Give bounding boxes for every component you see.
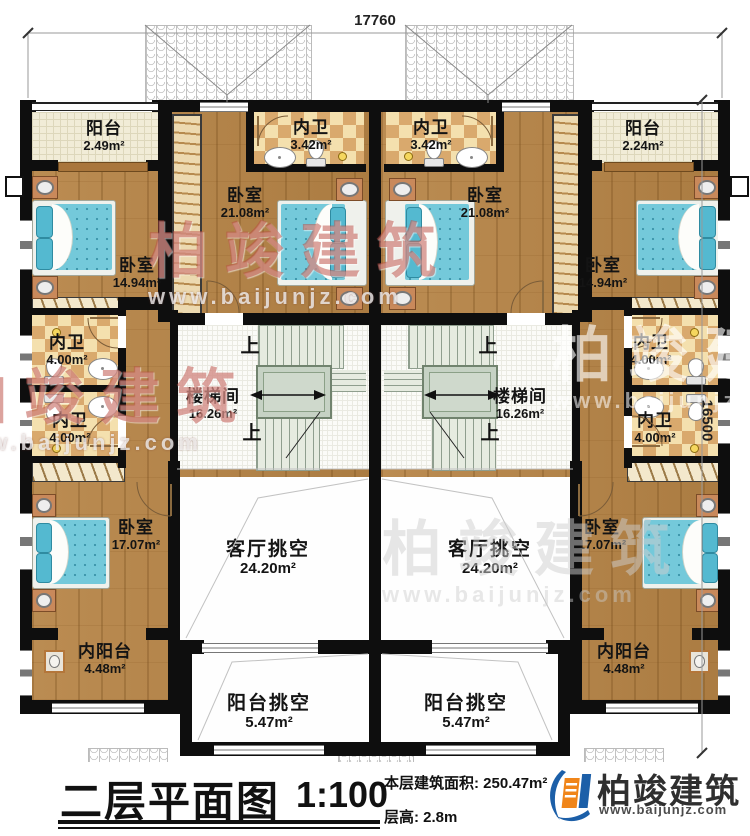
wardrobe-left-2 [32,461,125,482]
nightstand [336,287,363,310]
wall [578,297,632,310]
balcony-railing [592,102,718,111]
nightstand [694,176,720,199]
title-block: 二层平面图 1:100 本层建筑面积: 250.47m² 层高: 2.8m 柏竣… [0,762,750,836]
bed-pillow [702,553,718,583]
wall [630,308,718,315]
toilet-bowl [688,358,704,377]
roof-hatch-left [145,25,312,105]
closet-left [172,114,202,316]
window [432,643,548,653]
sink [88,358,118,380]
sink [456,147,488,168]
bed-pillow [36,206,53,238]
wall [168,461,180,714]
door-stopper [52,444,61,453]
door-stopper [404,152,413,161]
window [718,513,730,570]
dimension-right: 16500 [698,400,715,442]
wall [692,160,718,171]
wall [692,628,718,640]
stair-core [422,365,498,419]
logo-brand-url: www.baijunjz.com [599,802,727,817]
window [20,650,32,696]
wall [496,112,504,172]
balcony-door [604,162,694,172]
window [502,102,550,112]
window [20,335,32,379]
stairs-up-label: 上 [478,331,497,358]
room-label-bedroom-21-left: 卧室21.08m² [221,187,269,220]
wall [118,297,172,310]
washing-machine [44,650,65,673]
room-label-bedroom-14-right: 卧室14.94m² [579,257,627,290]
door-opening [205,313,243,325]
window [718,335,730,379]
nightstand [32,589,56,612]
door-opening [118,316,126,348]
room-label-balcony-void-right: 阳台挑空5.47m² [424,694,508,731]
room-label-balcony-void-left: 阳台挑空5.47m² [227,694,311,731]
room-label-balcony-right: 阳台2.24m² [622,120,663,153]
wall [630,456,718,463]
wall [32,160,58,171]
bed-pillow [406,243,422,278]
title-underline [58,820,380,824]
wall [158,100,370,112]
wall [384,164,504,172]
toilet-tank [44,376,64,385]
bed-pillow [699,238,716,270]
floor-area-row: 本层建筑面积: 250.47m² [384,772,547,793]
wall [578,112,592,322]
wall [630,385,718,392]
window [426,745,536,755]
floor-plan-canvas: 17760 16500 阳台2.49m² 内卫3.42m² 内卫3.42m² 阳… [0,0,750,770]
door-opening [507,313,545,325]
wardrobe-right-2 [627,461,720,482]
wall [180,640,192,756]
wall [580,628,604,640]
window [52,703,144,713]
bed-pillow [330,243,346,278]
stairs-up-label: 上 [480,418,499,445]
stair-landing [384,370,422,392]
room-label-bath2-left: 内卫4.00m² [49,412,90,445]
room-label-bath-topright: 内卫3.42m² [410,119,451,152]
nightstand [32,494,56,517]
room-label-bath-topleft: 内卫3.42m² [290,119,331,152]
door-stopper [338,152,347,161]
room-label-inner-balcony-left: 内阳台4.48m² [78,643,132,676]
wall [32,628,58,640]
wall [32,456,120,463]
room-label-living-void-right: 客厅挑空24.20m² [448,540,532,577]
window [200,102,248,112]
room-label-bedroom-14-left: 卧室14.94m² [113,257,161,290]
door-stopper [690,444,699,453]
bed-pillow [699,206,716,238]
door-stopper [690,328,699,337]
nightstand [696,494,720,517]
wall [170,310,178,480]
floor-plan-page: 17760 16500 阳台2.49m² 内卫3.42m² 内卫3.42m² 阳… [0,0,750,836]
nightstand [32,176,58,199]
toilet-tank [424,158,444,167]
bed-pillow [406,207,422,242]
toilet-tank [686,376,706,385]
stair-core [256,365,332,419]
washing-machine [689,650,710,673]
stair-flight-lower [256,415,320,471]
door-opening [624,416,632,448]
nightstand [389,178,416,201]
stairs-up-label: 上 [240,331,259,358]
balcony-railing [32,102,158,111]
dimension-top: 17760 [354,12,396,29]
wall [318,640,369,654]
window [718,220,730,270]
title-underline [58,827,380,829]
exterior-flue-box [5,176,24,197]
wall [570,461,582,714]
window [202,643,318,653]
window [606,703,698,713]
drawing-scale: 1:100 [296,774,388,816]
bed-pillow [330,207,346,242]
room-label-bedroom-17-left: 卧室17.07m² [112,519,160,552]
wall [381,640,432,654]
room-label-bedroom-21-right: 卧室21.08m² [461,187,509,220]
room-label-stairwell-right: 楼梯间16.26m² [493,388,547,421]
room-label-stairwell-left: 楼梯间16.26m² [186,388,240,421]
balcony-door [58,162,148,172]
window [20,513,32,570]
room-label-balcony-left: 阳台2.49m² [83,120,124,153]
stair-flight-upper [258,325,344,369]
wall [32,385,120,392]
nightstand [32,276,58,299]
wall [146,628,170,640]
logo-icon [548,766,594,824]
window [20,402,32,444]
stair-landing [328,370,366,392]
stairs-up-label: 上 [242,418,261,445]
room-label-bath1-right: 内卫4.00m² [630,334,671,367]
wall [572,310,580,480]
nightstand [694,276,720,299]
wall [246,112,254,172]
bed-pillow [36,553,52,583]
roof-hatch-right [405,25,574,105]
toilet [686,358,706,385]
toilet-tank [306,158,326,167]
exterior-flue-box [730,176,749,197]
room-label-bedroom-17-right: 卧室17.07m² [578,519,626,552]
room-label-inner-balcony-right: 内阳台4.48m² [597,643,651,676]
window [718,650,730,696]
wall [32,308,120,315]
bed-pillow [36,238,53,270]
window [214,745,324,755]
room-label-bath2-right: 内卫4.00m² [634,412,675,445]
wall [369,100,381,756]
nightstand [696,589,720,612]
door-opening [118,416,126,448]
nightstand [336,178,363,201]
room-label-living-void-left: 客厅挑空24.20m² [226,540,310,577]
window [718,402,730,444]
wall [158,112,172,322]
wall [380,100,592,112]
floor-height-row: 层高: 2.8m [384,806,457,827]
window [20,220,32,270]
sink [88,396,118,418]
bed-pillow [702,523,718,553]
bed-pillow [36,523,52,553]
room-label-bath1-left: 内卫4.00m² [46,334,87,367]
wall [558,640,570,756]
nightstand [389,287,416,310]
